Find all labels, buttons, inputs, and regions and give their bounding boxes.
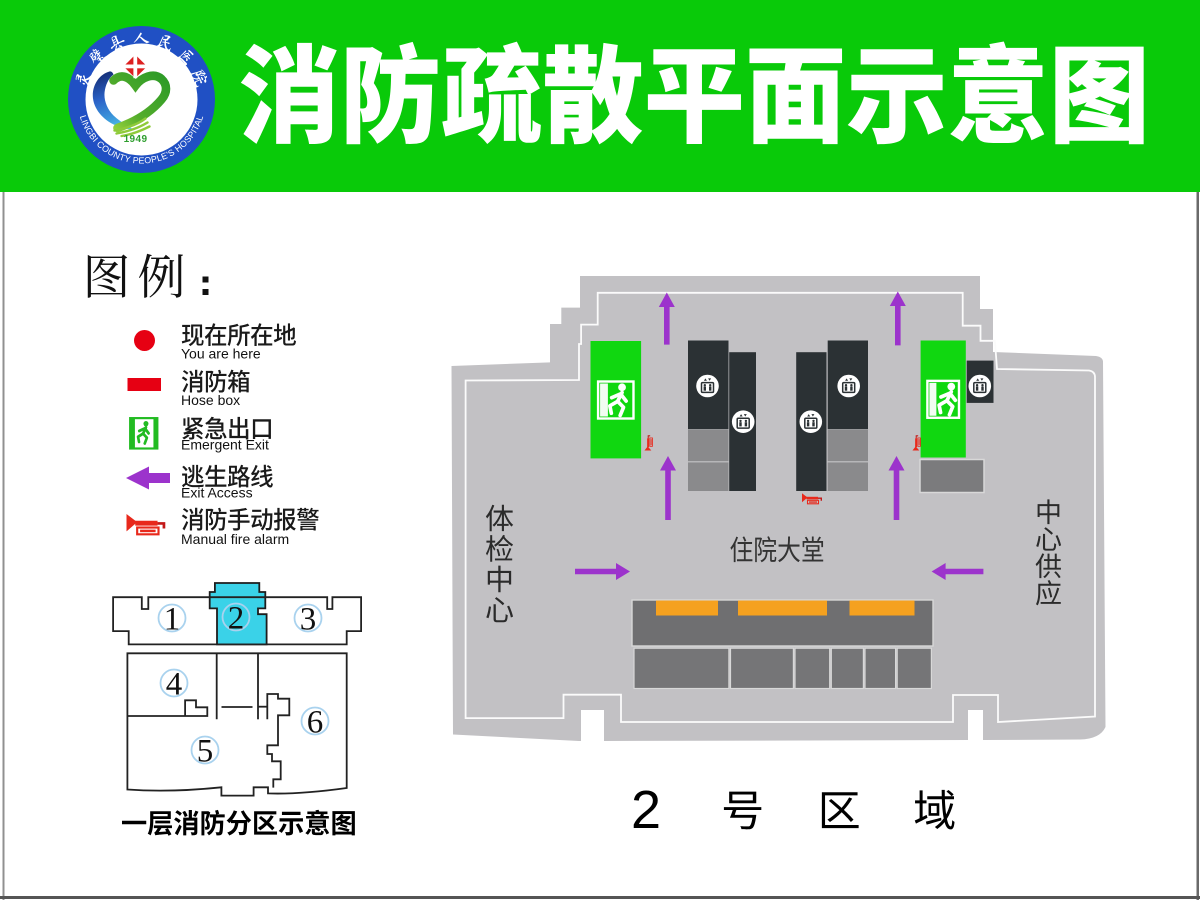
svg-text:Exit Access: Exit Access bbox=[181, 485, 253, 501]
svg-text:3: 3 bbox=[300, 602, 317, 638]
svg-text:You are here: You are here bbox=[181, 346, 261, 362]
svg-text:4: 4 bbox=[166, 667, 183, 703]
svg-text:Manual fire alarm: Manual fire alarm bbox=[181, 531, 289, 547]
svg-text:1: 1 bbox=[164, 602, 181, 638]
svg-text:6: 6 bbox=[307, 705, 324, 741]
svg-text:5: 5 bbox=[197, 734, 214, 770]
svg-text:Emergent Exit: Emergent Exit bbox=[181, 437, 269, 453]
svg-text:Hose box: Hose box bbox=[181, 392, 240, 408]
svg-text:2: 2 bbox=[228, 601, 245, 637]
svg-text:2: 2 bbox=[631, 780, 661, 840]
svg-text:1949: 1949 bbox=[124, 134, 148, 145]
